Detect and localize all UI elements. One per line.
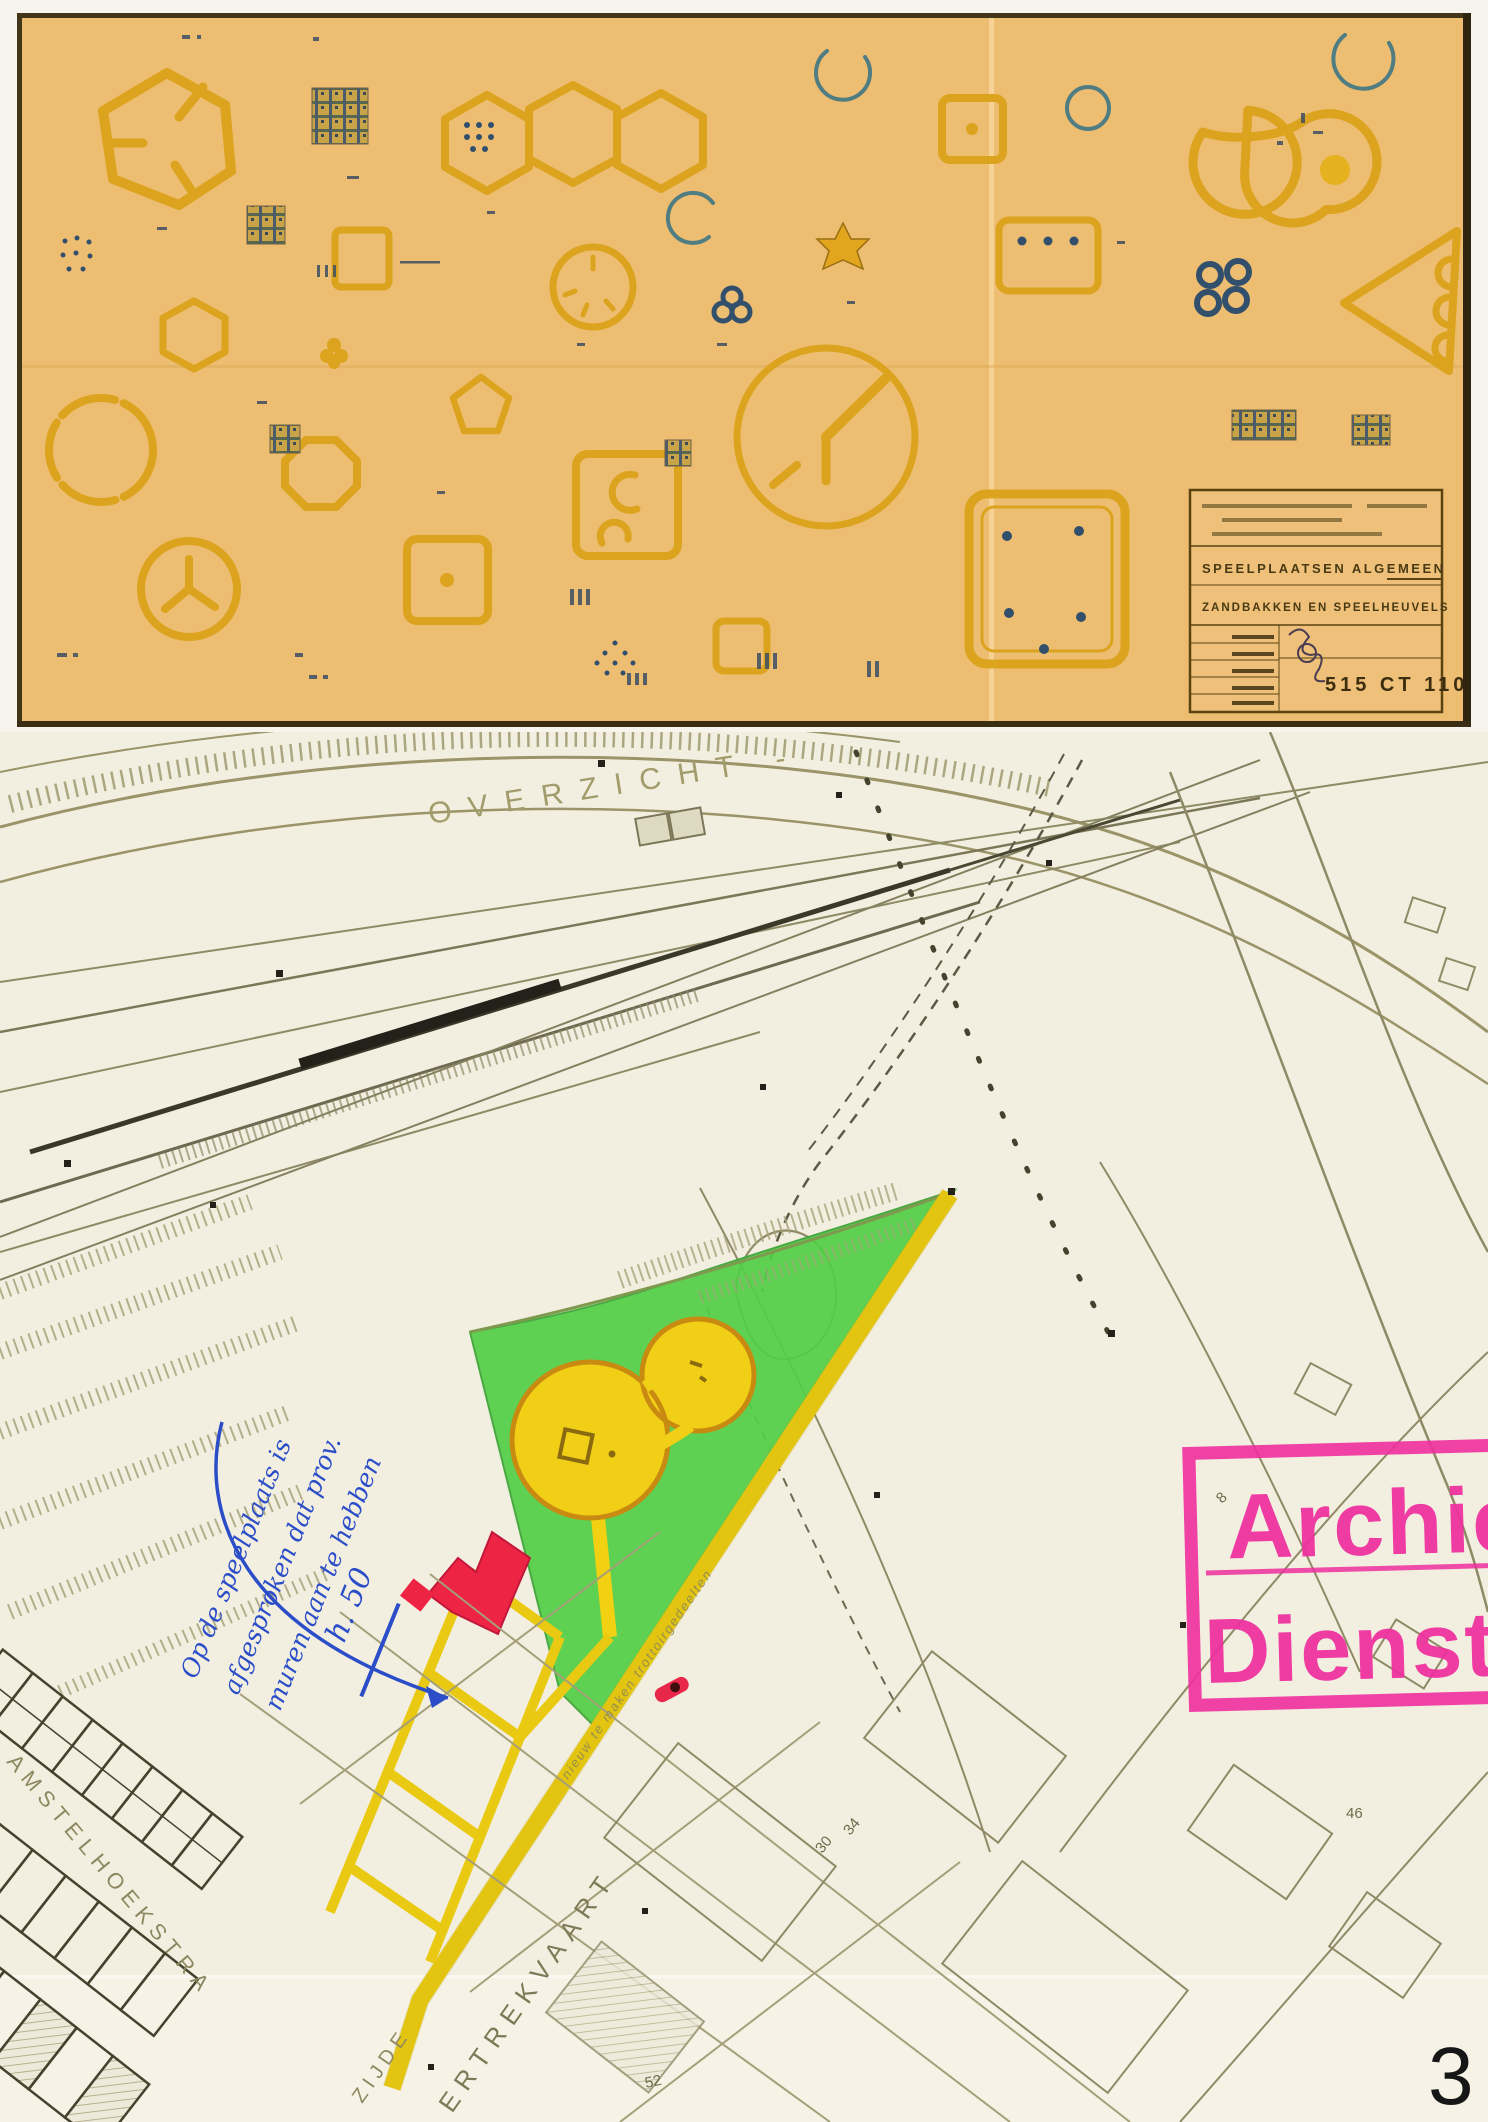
stamp-line-2: Dienst P. (1203, 1591, 1488, 1703)
stamp-line-1: Archie (1225, 1469, 1488, 1579)
sheet-title: SPEELPLAATSEN ALGEMEEN (1202, 561, 1446, 576)
map-paper-lower (0, 1977, 1488, 2122)
drawing-number: 515 CT 110 (1325, 674, 1468, 696)
plaid-chip-c (1232, 410, 1296, 440)
vertical-fold-crease (989, 13, 994, 727)
equipment-sheet-drawing: SPEELPLAATSEN ALGEMEEN ZANDBAKKEN EN SPE… (17, 13, 1471, 727)
plaid-chip-b (665, 440, 691, 466)
sheet-frame-right (1463, 13, 1471, 727)
plot-number-46: 46 (1346, 1805, 1363, 1822)
horizontal-fold-crease (17, 365, 1471, 368)
plaid-chip-d (1352, 415, 1390, 445)
sheet-frame-bottom (17, 721, 1471, 727)
map-seam (0, 1975, 1488, 1978)
plaid-panel-small (247, 206, 285, 244)
plaid-chip-a (270, 425, 300, 453)
archival-scan-page: { "page": { "number": "3" }, "sheet": { … (0, 0, 1488, 2122)
site-plan-map: OVERZICHT - (0, 732, 1488, 2122)
title-block: SPEELPLAATSEN ALGEMEEN ZANDBAKKEN EN SPE… (1190, 490, 1468, 712)
sheet-subtitle: ZANDBAKKEN EN SPEELHEUVELS (1202, 602, 1450, 614)
site-plan-drawing: OVERZICHT - (0, 732, 1488, 2122)
equipment-sheet: SPEELPLAATSEN ALGEMEEN ZANDBAKKEN EN SPE… (17, 13, 1471, 727)
plaid-panel-large (312, 88, 368, 144)
plot-number-52: 52 (643, 2072, 663, 2092)
page-number: 3 (1428, 2031, 1474, 2122)
